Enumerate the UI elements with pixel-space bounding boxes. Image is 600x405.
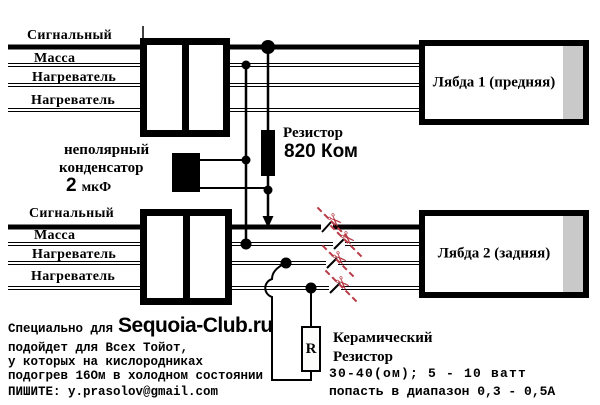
footer-contact-email: ПИШИТЕ: y.prasolov@gmail.com [8, 385, 218, 399]
wire-label-ground-lower: Масса [34, 228, 75, 244]
capacitor-label-line1: неполярный [64, 142, 149, 159]
wire-label-heater2-upper: Нагреватель [31, 93, 115, 109]
footer-line4: подогрев 16Ом в холодном состоянии [8, 369, 263, 383]
wire-label-signal-upper: Сигнальный [27, 28, 112, 44]
ceramic-resistor-body: R [301, 326, 321, 372]
ceramic-resistor-line2: Резистор [333, 349, 393, 366]
lambda2-box: Лябда 2 (задняя) [419, 210, 589, 298]
wiring-diagram: Лябда 1 (предняя) Лябда 2 (задняя) R ✂ ✂… [0, 0, 600, 405]
lambda1-label: Лябда 1 (предняя) [429, 74, 559, 91]
footer-line2: подойдет для Всех Тойот, [8, 341, 188, 355]
wire-label-heater1-lower: Нагреватель [32, 247, 116, 263]
resistor-820-value: 820 Ком [284, 141, 358, 163]
resistor-820-body [261, 130, 275, 176]
capacitor-value: 2 [66, 175, 77, 197]
lambda1-box: Лябда 1 (предняя) [419, 40, 589, 125]
connector-divider [182, 45, 189, 130]
ceramic-resistor-symbol: R [306, 341, 317, 358]
wire-label-ground-upper: Масса [34, 51, 75, 67]
junction-dots [241, 40, 317, 294]
ceramic-resistor-note: попасть в диапазон 0,3 - 0,5А [329, 384, 555, 399]
lambda1-connector-strip [563, 46, 583, 119]
wire-label-heater2-lower: Нагреватель [31, 269, 115, 285]
capacitor-leads [200, 160, 268, 188]
capacitor-body [172, 153, 200, 192]
wire-label-heater1-upper: Нагреватель [32, 70, 116, 86]
lambda2-connector-strip [563, 216, 583, 292]
capacitor-unit: мкФ [82, 180, 112, 196]
connector-divider [183, 216, 190, 298]
lambda2-label: Лябда 2 (задняя) [429, 246, 559, 263]
ceramic-resistor-spec: 30-40(ом); 5 - 10 ватт [329, 366, 527, 381]
footer-line3: у которых на кислородниках [8, 355, 203, 369]
footer-line1: Специально для Sequoia-Club.ru [8, 314, 273, 338]
footer-line1-prefix: Специально для [8, 322, 113, 336]
site-name: Sequoia-Club.ru [118, 314, 273, 338]
wire-label-signal-lower: Сигнальный [29, 206, 114, 222]
ceramic-resistor-line1: Керамический [333, 330, 433, 347]
connector-lower [140, 209, 232, 305]
resistor-820-name: Резистор [283, 125, 343, 142]
connector-upper [140, 38, 230, 137]
